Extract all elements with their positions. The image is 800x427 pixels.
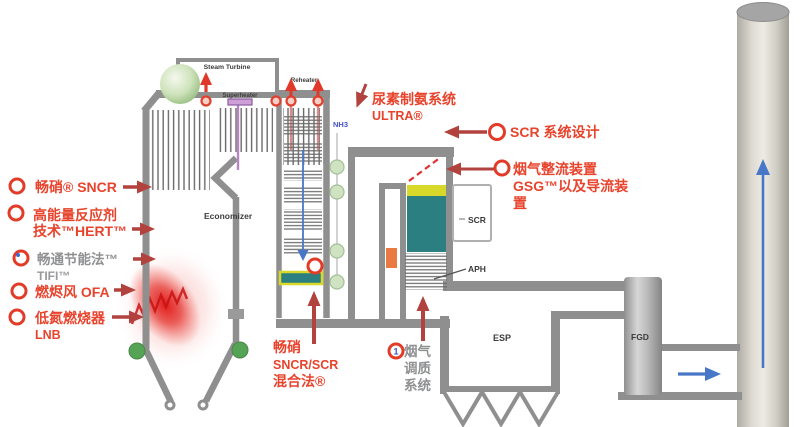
urea-label-line2: ULTRA® (372, 109, 423, 123)
fgc-badge-number: 1 (393, 347, 398, 357)
hert-label-line2: 技术™HERT™ (33, 223, 127, 239)
convective-tubes (217, 108, 273, 152)
superheater-callout-box (228, 99, 252, 105)
nozzle-port (330, 185, 344, 199)
left-callouts: 畅硝® SNCR 高能量反应剂 技术™HERT™ 畅通节能法™ TIFI™ 燃烬… (9, 179, 152, 342)
fgd-label: FGD (631, 332, 649, 342)
tifi-badge-dot (16, 253, 20, 257)
gsg-label-line1: 烟气整流装置 (513, 161, 597, 177)
steam-side: Steam Turbine Superheater Reheater (160, 60, 323, 106)
stack (737, 3, 789, 427)
nozzle-port (330, 160, 344, 174)
riser-damper (386, 248, 397, 268)
steam-port (314, 97, 323, 106)
aph-label: APH (468, 264, 486, 274)
esp-hopper (520, 392, 558, 424)
hybrid-label-line1: 畅硝 (273, 339, 301, 355)
superheater-tubes (150, 110, 210, 190)
fgc-label-line3: 系统 (404, 377, 431, 393)
scr-design-label: SCR 系统设计 (510, 124, 599, 140)
tifi-label-line2: TIFI™ (37, 269, 70, 283)
steam-port (202, 97, 211, 106)
economizer-bank (284, 116, 322, 136)
injection-nozzles (330, 133, 344, 289)
hopper-curl (199, 401, 207, 409)
scr-label: SCR (468, 215, 486, 225)
ofa-badge-icon (12, 284, 26, 298)
hybrid-label-line2: SNCR/SCR (273, 358, 338, 372)
stack-top (737, 3, 789, 22)
steam-port (287, 97, 296, 106)
superheater-label: Superheater (222, 93, 258, 99)
esp-hopper (444, 392, 482, 424)
scr-design-badge-icon (490, 125, 505, 140)
gas-flow-straightener-dashed (409, 157, 441, 181)
diagram-canvas: FGD ESP (0, 0, 800, 427)
esp-hopper (482, 392, 520, 424)
tifi-badge-icon (14, 251, 28, 265)
hert-label-line1: 高能量反应剂 (33, 207, 117, 223)
steam-port (272, 97, 281, 106)
lnb-badge-icon (10, 310, 24, 324)
duct-top-wall (660, 344, 740, 351)
hopper-curl (166, 401, 174, 409)
air-preheater (405, 253, 447, 290)
lnb-label-line1: 低氮燃烧器 (34, 310, 106, 326)
lnb-label-line2: LNB (35, 328, 61, 342)
reheater-label: Reheater (291, 77, 318, 84)
esp-right-wall (551, 311, 560, 394)
hybrid-label-line3: 混合法® (273, 373, 326, 389)
scr-top-layer (407, 185, 446, 196)
scr-tower: SCR APH (348, 147, 491, 322)
hopper-corner-port (232, 342, 248, 358)
fgd-absorber: FGD (624, 277, 662, 395)
nh3-label: NH3 (333, 120, 348, 129)
economizer-label: Economizer (204, 211, 253, 221)
furnace-nose (215, 158, 236, 198)
gsg-badge-icon (495, 161, 509, 175)
hopper-corner-port (129, 343, 145, 359)
fgc-label-line2: 调质 (404, 360, 431, 376)
scr-catalyst (407, 196, 446, 252)
steam-turbine-label: Steam Turbine (204, 64, 251, 71)
fgc-label-line1: 烟气 (404, 343, 431, 359)
gsg-label-line3: 置 (513, 195, 527, 211)
gsg-label-line2: GSG™以及导流装 (513, 178, 629, 194)
urea-label-line1: 尿素制氨系统 (372, 91, 456, 107)
scr-inlet-duct-top (348, 147, 454, 157)
hybrid-badge-icon (308, 259, 322, 273)
esp-roof (443, 281, 625, 291)
urea-arrow (358, 84, 366, 104)
sncr-badge-icon (10, 179, 24, 193)
scr-tag-plate (453, 185, 491, 241)
hert-badge-icon (9, 206, 23, 220)
steam-drum (160, 64, 200, 104)
boiler-sncr-scr-diagram: FGD ESP (0, 0, 800, 427)
ofa-label: 燃烬风 OFA (35, 284, 110, 300)
downcomer-flange (228, 309, 244, 319)
esp-label: ESP (493, 333, 511, 343)
nozzle-port (330, 275, 344, 289)
esp: ESP (440, 281, 625, 424)
nozzle-port (330, 244, 344, 258)
sncr-label: 畅硝® SNCR (35, 179, 117, 195)
esp-outlet-floor (551, 311, 625, 319)
tifi-label-line1: 畅通节能法™ (37, 251, 118, 267)
